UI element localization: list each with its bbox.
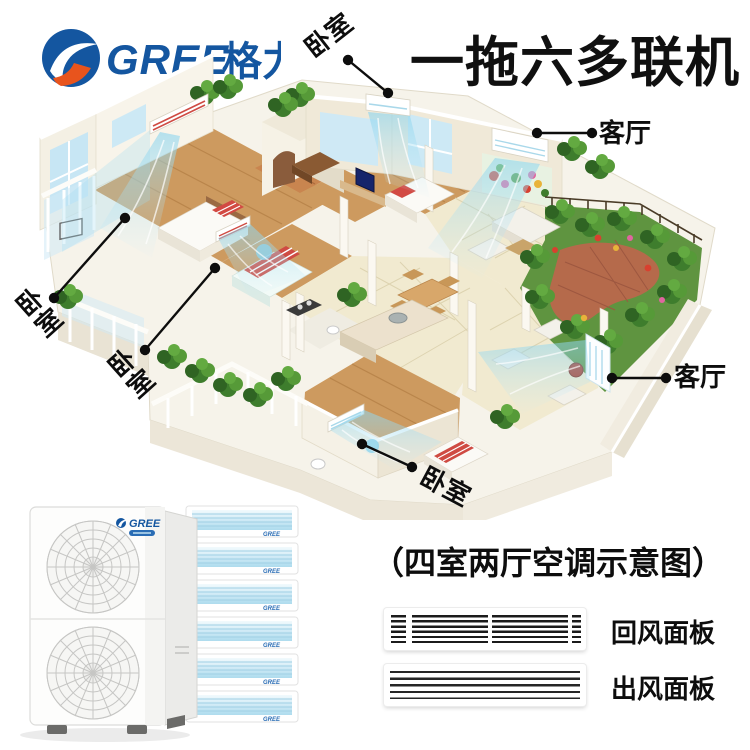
fan-grille-icon (47, 521, 139, 613)
panel-slats (492, 615, 568, 643)
svg-text:GREE: GREE (263, 680, 281, 686)
indoor-units-stack: GREE GREE GREE GREE (186, 506, 298, 723)
air-outlet-panel-label: 出风面板 (611, 669, 715, 706)
indoor-unit: GREE (186, 543, 298, 575)
panel-slats (412, 615, 488, 643)
svg-text:GREE: GREE (129, 518, 161, 530)
callout-label-living-right: 客厅 (674, 364, 726, 391)
callout-label-living-top-right: 客厅 (599, 120, 651, 147)
indoor-unit: GREE (186, 617, 298, 649)
panel-slats (572, 615, 581, 643)
outdoor-unit: GREE (20, 507, 197, 742)
product-diagram-page: GREE 格力 一拖六多联机 (0, 0, 750, 750)
indoor-unit: GREE (186, 691, 298, 723)
caption-text: （四室两厅空调示意图） (372, 538, 744, 584)
svg-text:GREE: GREE (263, 569, 281, 575)
svg-text:GREE: GREE (263, 643, 281, 649)
indoor-unit: GREE (186, 580, 298, 612)
outdoor-and-indoor-units-image: GREE GREE GREE GREE (15, 497, 315, 745)
return-air-panel-image (384, 608, 586, 650)
panel-slats (391, 615, 406, 643)
fan-grille-icon (47, 627, 139, 719)
apartment-illustration (0, 0, 750, 520)
return-air-panel-label: 回风面板 (611, 613, 715, 650)
indoor-unit: GREE (186, 506, 298, 538)
air-outlet-panel-image (384, 664, 586, 706)
svg-text:GREE: GREE (263, 532, 281, 538)
indoor-unit: GREE (186, 654, 298, 686)
svg-text:GREE: GREE (263, 606, 281, 612)
svg-text:GREE: GREE (263, 717, 281, 723)
panel-slats (390, 671, 580, 699)
